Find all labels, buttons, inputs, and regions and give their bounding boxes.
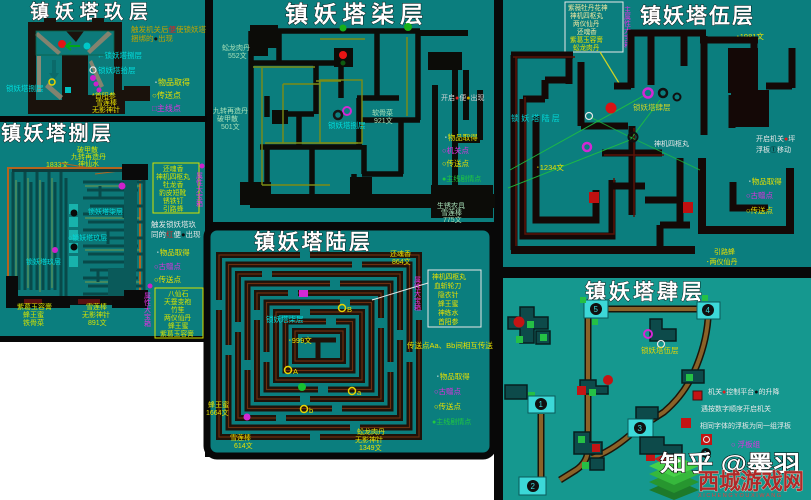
svg-text:两仪仙丹: 两仪仙丹 [164,313,191,322]
svg-text:864文: 864文 [392,257,411,266]
svg-text:891文: 891文 [88,318,107,327]
svg-text:还魂香: 还魂香 [390,249,411,258]
svg-text:触发机关后便使锁妖塔: 触发机关后便使锁妖塔 [131,24,206,34]
svg-text:神机四枢丸: 神机四枢丸 [570,11,603,20]
svg-text:●主线剧情点: ●主线剧情点 [442,174,481,183]
svg-text:蚣龙肉丹: 蚣龙肉丹 [357,427,385,436]
svg-text:锁妖塔捌层: 锁妖塔捌层 [6,83,44,93]
svg-text:镇妖塔捌层: 镇妖塔捌层 [1,121,111,145]
svg-text:引路蜂: 引路蜂 [163,204,184,213]
svg-text:传送点Aa、Bb间相互传送: 传送点Aa、Bb间相互传送 [407,340,493,350]
svg-text:相同字体的浮板为同一组浮板: 相同字体的浮板为同一组浮板 [700,421,791,430]
svg-text:1: 1 [539,400,544,409]
svg-text:･物品取得: ･物品取得 [444,132,478,142]
svg-text:○传送点: ○传送点 [152,90,181,100]
svg-text:1664文: 1664文 [206,408,229,417]
svg-text:5: 5 [594,305,599,314]
svg-text:蜂王蜜: 蜂王蜜 [168,321,189,330]
svg-text:XICHENGYOUXIWANG: XICHENGYOUXIWANG [698,493,783,499]
svg-text:○机关点: ○机关点 [442,145,470,155]
svg-text:雪莲棒: 雪莲棒 [441,208,462,217]
svg-text:○传送点: ○传送点 [442,158,470,168]
svg-text:西城游戏网: 西城游戏网 [698,469,804,494]
svg-text:引路蜂: 引路蜂 [714,247,735,256]
svg-text:属性大宝箱: 属性大宝箱 [414,276,422,312]
svg-text:遇按数字顺序开启机关: 遇按数字顺序开启机关 [701,404,771,413]
svg-text:蚣龙肉丹: 蚣龙肉丹 [573,43,600,52]
svg-text:蜂王蜜: 蜂王蜜 [208,400,229,409]
svg-text:镇妖塔柒层: 镇妖塔柒层 [285,1,423,27]
svg-text:○锁妖塔玖层: ○锁妖塔玖层 [68,233,107,242]
svg-text:血斩轮刀: 血斩轮刀 [434,281,461,290]
svg-text:神机四枢丸: 神机四枢丸 [432,272,466,281]
svg-text:○ 浮板组: ○ 浮板组 [731,439,761,449]
svg-text:蚣龙肉丹: 蚣龙肉丹 [222,43,250,52]
svg-text:开启机关●坪: 开启机关●坪 [756,134,795,143]
svg-text:b: b [309,406,313,415]
svg-text:B: B [347,305,352,314]
svg-text:无影神针: 无影神针 [355,435,383,444]
svg-text:锁妖塔伍层: 锁妖塔伍层 [641,345,679,355]
svg-text:牡龙香: 牡龙香 [163,180,184,189]
svg-text:锁妖塔柒层: 锁妖塔柒层 [266,314,304,324]
svg-text:921文: 921文 [374,116,393,125]
svg-text:2: 2 [531,482,536,491]
svg-text:触发锁妖塔玖: 触发锁妖塔玖 [151,219,196,229]
svg-text:锁妖塔玖层: 锁妖塔玖层 [26,257,61,266]
svg-text:镇妖塔陆层: 镇妖塔陆层 [254,230,370,254]
svg-text:･物品取得: ･物品取得 [154,77,190,87]
svg-text:○传送点: ○传送点 [746,205,774,215]
svg-text:破甲散: 破甲散 [217,114,238,123]
svg-text:属性大宝箱: 属性大宝箱 [196,172,204,208]
svg-text:･物品取得: ･物品取得 [156,247,190,257]
svg-text:･999文: ･999文 [288,335,312,345]
svg-text:锁妖塔陆层: 锁妖塔陆层 [511,113,562,123]
svg-text:蜂王蜜: 蜂王蜜 [23,310,44,319]
svg-text:隐衣针: 隐衣针 [438,290,459,299]
svg-text:镇妖塔伍层: 镇妖塔伍层 [640,4,753,28]
svg-text:锁妖塔捌层: 锁妖塔捌层 [328,120,366,130]
svg-text:属性大宝箱: 属性大宝箱 [144,292,152,328]
svg-text:1349文: 1349文 [359,443,382,452]
svg-text:九转再造丹: 九转再造丹 [71,152,106,161]
svg-text:雪莲棒: 雪莲棒 [230,433,251,442]
svg-text:614文: 614文 [234,441,253,450]
svg-text:←锁妖塔捌层: ←锁妖塔捌层 [97,50,142,60]
svg-text:･1234文: ･1234文 [536,162,564,172]
svg-text:无影神针: 无影神针 [92,105,120,114]
svg-text:○古赠点: ○古赠点 [434,386,462,396]
svg-text:锁妖塔柒层: 锁妖塔柒层 [88,207,123,216]
svg-text:･物品取得: ･物品取得 [748,176,782,186]
svg-text:□主线点: □主线点 [152,103,181,113]
svg-text:A: A [293,367,298,376]
svg-text:紫薇牡丹花神: 紫薇牡丹花神 [568,3,608,12]
svg-text:还魂香: 还魂香 [577,27,597,36]
svg-text:神机四枢丸: 神机四枢丸 [654,139,689,148]
svg-text:3: 3 [638,424,643,433]
svg-text:锁妖塔拾层: 锁妖塔拾层 [98,65,136,75]
svg-text:机关●控制平台●的升降: 机关●控制平台●的升降 [708,387,779,396]
svg-text:开启●便●出现: 开启●便●出现 [441,93,484,102]
svg-text:无影神针: 无影神针 [82,310,110,319]
svg-text:竹笙: 竹笙 [171,305,185,314]
svg-text:･物品取得: ･物品取得 [436,371,470,381]
svg-text:首阳参: 首阳参 [438,317,459,326]
svg-text:八仙石: 八仙石 [168,289,189,298]
svg-text:天蚕变袍: 天蚕变袍 [164,297,191,306]
svg-text:○古赠点: ○古赠点 [746,190,774,200]
svg-text:紫葛玉容膏: 紫葛玉容膏 [570,35,603,44]
svg-text:神机四枢丸: 神机四枢丸 [156,172,190,181]
svg-text:775文: 775文 [443,215,462,224]
svg-text:○传送点: ○传送点 [154,274,182,284]
svg-text:豹皮短靴: 豹皮短靴 [159,188,186,197]
svg-text:锈铁钉: 锈铁钉 [163,196,184,205]
svg-text:铁骨菜: 铁骨菜 [23,318,44,327]
svg-text:九转再造丹: 九转再造丹 [213,106,248,115]
svg-text:4: 4 [706,306,711,315]
svg-text:破甲散: 破甲散 [77,145,98,154]
svg-text:･两仪仙丹: ･两仪仙丹 [706,257,738,266]
svg-text:捆绑的●出现: 捆绑的●出现 [131,33,174,43]
svg-text:雪莲棒: 雪莲棒 [86,302,107,311]
svg-text:501文: 501文 [221,122,240,131]
svg-text:同的红便●出现: 同的红便●出现 [151,229,201,239]
svg-text:紫葛玉容膏: 紫葛玉容膏 [160,329,194,338]
svg-text:○古赠点: ○古赠点 [154,261,182,271]
svg-text:软骨菜: 软骨菜 [372,108,393,117]
svg-text:*首阳参: *首阳参 [92,91,116,100]
svg-text:紫葛玉容膏: 紫葛玉容膏 [17,302,52,311]
svg-text:雪莲棒: 雪莲棒 [96,98,117,107]
svg-text:两仪仙丹: 两仪仙丹 [573,19,600,28]
svg-text:●主线剧情点: ●主线剧情点 [432,417,471,426]
svg-text:552文: 552文 [228,51,247,60]
svg-text:蜂王蜜: 蜂王蜜 [438,299,459,308]
svg-text:锁妖塔肆层: 锁妖塔肆层 [633,102,671,112]
svg-text:神练水: 神练水 [438,308,459,317]
svg-text:浮板①移动: 浮板①移动 [756,145,791,154]
svg-text:○传送点: ○传送点 [434,401,462,411]
svg-text:生锈农具: 生锈农具 [437,201,465,210]
svg-text:还魂香: 还魂香 [163,164,184,173]
